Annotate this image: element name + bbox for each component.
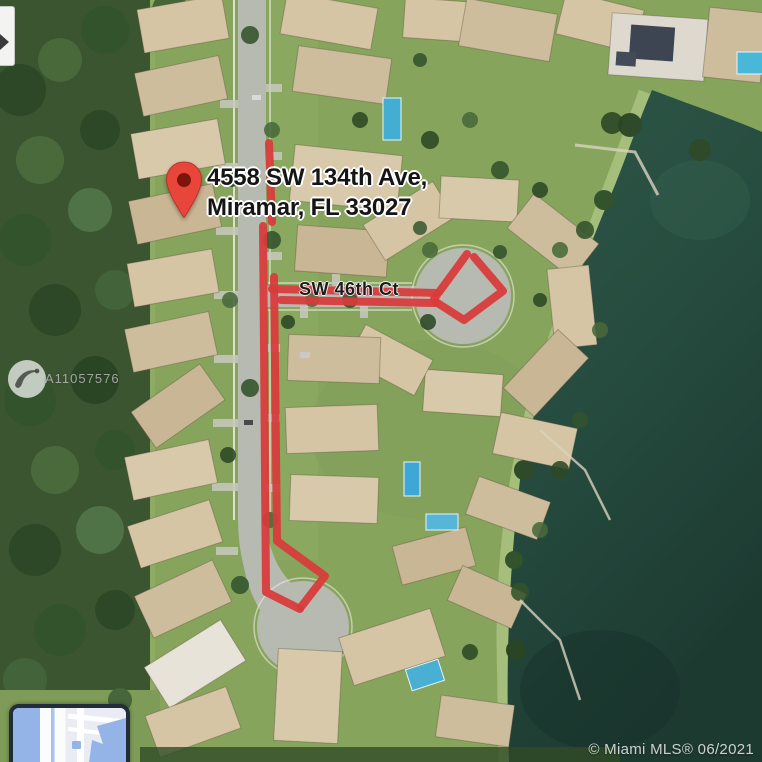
map-pin-icon[interactable] bbox=[165, 161, 203, 219]
left-triangle-icon bbox=[0, 34, 9, 50]
listing-id-watermark: A11057576 bbox=[45, 371, 120, 386]
cropped-ui-fragment bbox=[0, 6, 15, 66]
street-label: SW 46th Ct bbox=[299, 279, 399, 300]
inset-map-graphic bbox=[13, 708, 126, 762]
inset-map-thumbnail[interactable] bbox=[9, 704, 130, 762]
mls-logo-icon bbox=[7, 359, 47, 399]
address-line1: 4558 SW 134th Ave, bbox=[207, 163, 427, 193]
copyright-watermark: © Miami MLS® 06/2021 bbox=[588, 741, 754, 758]
marker-address-label: 4558 SW 134th Ave, Miramar, FL 33027 bbox=[207, 163, 427, 223]
map-canvas[interactable]: SW 46th Ct 4558 SW 134th Ave, Miramar, F… bbox=[0, 0, 762, 762]
address-line2: Miramar, FL 33027 bbox=[207, 193, 427, 223]
